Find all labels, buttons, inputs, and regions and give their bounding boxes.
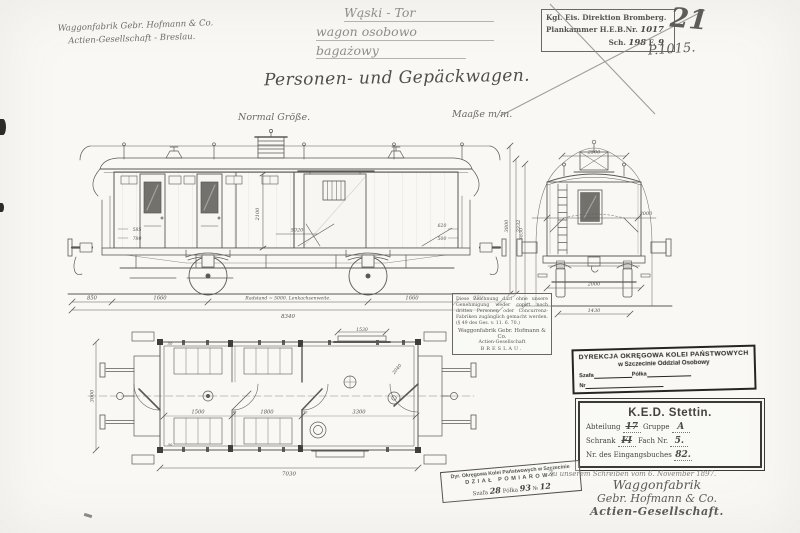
pencil-line3: bagażowy xyxy=(316,44,466,60)
signature-block: Zu unserem Schreiben vom 6. November 189… xyxy=(548,470,766,518)
dim-frame-width: 2000 xyxy=(587,282,602,288)
tilted-nr-label: № xyxy=(533,486,539,492)
dim-gauge: 1430 xyxy=(588,308,602,314)
plan-big-number: 21 xyxy=(669,2,709,36)
gruppe-label: Gruppe xyxy=(643,423,670,431)
signature-line1: Waggonfabrik xyxy=(548,477,766,492)
dim-left-axle: 1660 xyxy=(153,296,167,302)
dim-small-l1: 585 xyxy=(133,227,142,233)
eingangsbuch-value: 82. xyxy=(674,450,692,461)
dim-radstand: Radstand = 5000. Lenkachsenweite. xyxy=(244,296,331,302)
dim-floor-length: 5020 xyxy=(291,228,305,234)
ked-row1: Abteilung 17 Gruppe A xyxy=(586,422,754,433)
scale-label: Normal Größe. xyxy=(238,112,310,123)
signature-line3: Actien-Gesellschaft. xyxy=(548,505,766,518)
polish-directorate-stamp: DYREKCJA OKRĘGOWA KOLEI PAŃSTWOWYCH w Sz… xyxy=(571,345,756,395)
dim-left-overhang: 850 xyxy=(87,296,98,302)
dim-slide-door: 1530 xyxy=(356,327,368,333)
maker-inscription: Waggonfabrik Gebr. Hofmann & Co. Actien-… xyxy=(58,17,214,48)
dim-plan-width: 3000 xyxy=(90,389,96,403)
dim-body-width: 3000 xyxy=(640,211,654,217)
schrank-value-ked: FI xyxy=(618,436,636,447)
drawing-sheet: Waggonfabrik Gebr. Hofmann & Co. Actien-… xyxy=(0,0,800,533)
dim-door-diagonal: 2040 xyxy=(391,363,404,377)
tilted-szafa-value: 28 xyxy=(489,485,501,496)
gruppe-value: A xyxy=(672,422,690,433)
dim-baggage-room: 3300 xyxy=(352,410,366,416)
notice-city: BRESLAU. xyxy=(456,346,548,352)
dim-right-axle: 1660 xyxy=(405,296,419,302)
pencil-line2: wagon osobowo xyxy=(316,25,494,41)
fach-value-ked: 5. xyxy=(670,436,688,447)
dim-wall-50b: 50 xyxy=(168,442,173,447)
notice-company2: Actien-Gesellschaft xyxy=(456,340,548,345)
blank-line xyxy=(586,380,664,389)
dim-small-r2: 500 xyxy=(438,236,447,242)
scan-artifact xyxy=(84,513,93,518)
tilted-polka-label: Półka xyxy=(503,487,519,494)
plan-view-drawing: 1500 90 1800 30 3300 7030 3000 1530 2040… xyxy=(86,326,476,486)
blank-line xyxy=(594,371,632,379)
copyright-notice-box: Diese Zeichnung darf ohne unsere Genehmi… xyxy=(452,293,552,355)
dim-body-height: 2100 xyxy=(255,207,261,222)
tilted-szafa-label: Szafa xyxy=(472,490,488,497)
signature-line2: Gebr. Hofmann & Co. xyxy=(548,492,766,505)
polish-stamp-line4: Nr xyxy=(579,378,749,389)
pencil-annotation: Wąski - Tor wagon osobowo bagażowy xyxy=(316,6,506,62)
dim-wall-50a: 50 xyxy=(168,341,173,346)
schrank-label-ked: Schrank xyxy=(586,437,616,445)
dim-height-1: 3800 xyxy=(504,219,510,233)
eingangsbuch-label: Nr. des Eingangsbuches xyxy=(586,451,672,459)
dim-total-length: 8340 xyxy=(281,314,295,320)
ked-stettin-stamp: K.E.D. Stettin. Abteilung 17 Gruppe A Sc… xyxy=(578,401,762,468)
units-label: Maaße m/m. xyxy=(452,109,512,120)
notice-company: Waggonfabrik Gebr. Hofmann & Co. xyxy=(456,328,548,340)
fach-label-ked: Fach Nr. xyxy=(638,437,668,445)
plan-view-lines xyxy=(88,329,476,471)
scan-artifact xyxy=(0,203,4,212)
end-view-lines xyxy=(516,140,672,317)
dim-plan-total: 7030 xyxy=(282,472,296,478)
dim-small-r1: 620 xyxy=(438,223,447,229)
dim-wall2: 30 xyxy=(303,410,308,415)
tilted-polka-value: 93 xyxy=(519,482,531,493)
dim-roof-width: 2500 xyxy=(587,150,602,156)
side-elevation-lines xyxy=(68,129,519,313)
scan-artifact xyxy=(0,119,6,135)
copyright-text: Diese Zeichnung darf ohne unsere Genehmi… xyxy=(456,297,548,326)
blank-line xyxy=(647,369,691,377)
dim-compartment1: 1500 xyxy=(191,410,205,416)
dim-small-l2: 780 xyxy=(133,236,142,242)
pencil-line1: Wąski - Tor xyxy=(344,6,494,22)
ked-row3: Nr. des Eingangsbuches 82. xyxy=(586,450,754,461)
abteilung-label: Abteilung xyxy=(586,423,620,431)
abteilung-value: 17 xyxy=(623,422,641,433)
dim-compartment2: 1800 xyxy=(260,410,274,416)
dim-wall1: 90 xyxy=(232,410,237,415)
szafa-label: Szafa xyxy=(579,373,594,379)
dim-end-height: 3850 xyxy=(519,227,525,241)
ked-title: K.E.D. Stettin. xyxy=(586,407,754,419)
polka-label: Półka xyxy=(632,371,647,377)
ked-row2: Schrank FI Fach Nr. 5. xyxy=(586,436,754,447)
